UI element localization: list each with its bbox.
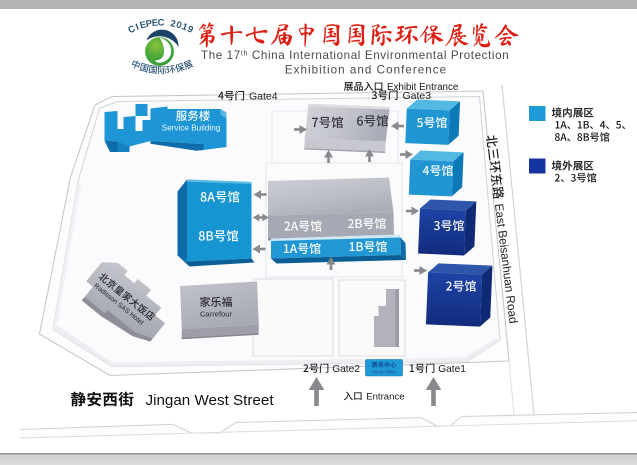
svg-text:Gate2: Gate2	[332, 364, 360, 375]
svg-text:Gate4: Gate4	[249, 91, 278, 103]
svg-text:Ticket Office: Ticket Office	[371, 370, 397, 375]
svg-text:The 17th China International E: The 17th China International Environment…	[201, 49, 509, 63]
svg-text:Gate3: Gate3	[402, 90, 431, 102]
svg-text:Carrefour: Carrefour	[200, 310, 233, 319]
svg-text:Gate1: Gate1	[438, 364, 466, 375]
svg-text:Service Building: Service Building	[162, 124, 221, 133]
svg-text:Exhibition and Conference: Exhibition and Conference	[285, 64, 447, 77]
svg-text:Jingan West Street: Jingan West Street	[146, 392, 275, 409]
svg-text:Entrance: Entrance	[366, 392, 404, 403]
